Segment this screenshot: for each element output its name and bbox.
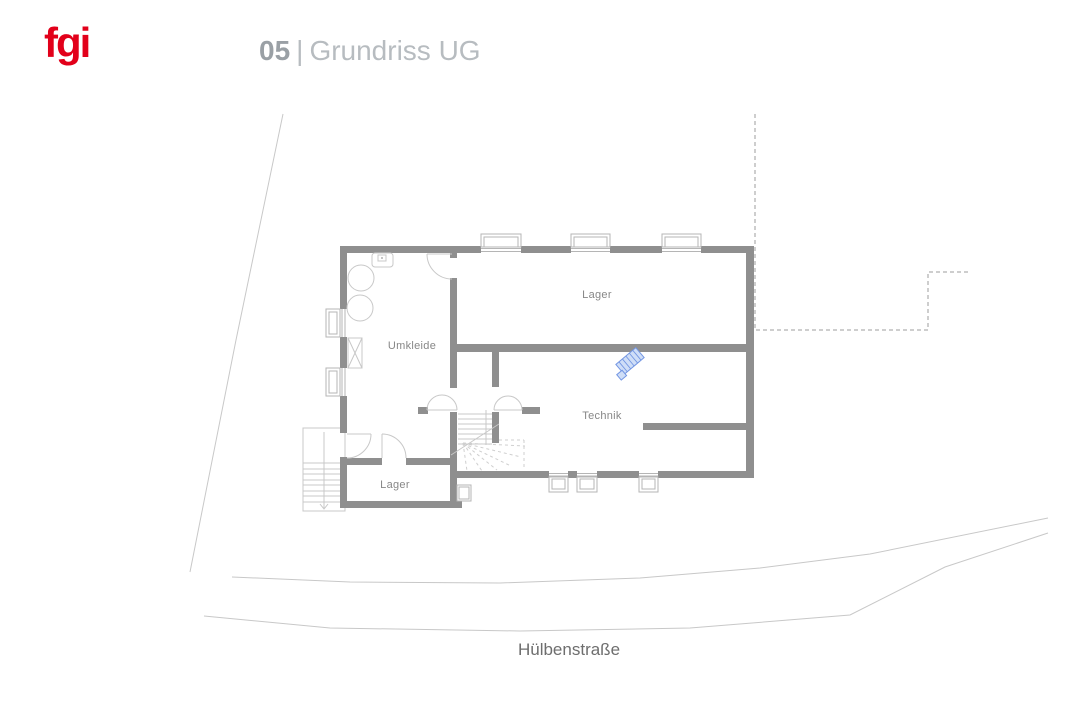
property-line-diagonal bbox=[190, 114, 283, 572]
room-label-technik: Technik bbox=[552, 410, 652, 422]
interior-stair bbox=[451, 410, 525, 471]
door-umkleide-lager bbox=[427, 254, 452, 279]
stair-winder-dashed bbox=[463, 440, 525, 471]
round-fixture bbox=[347, 295, 373, 321]
slide-page: fgi 05|Grundriss UG bbox=[0, 0, 1089, 712]
stair-direction-arrow bbox=[320, 500, 328, 509]
door-exterior-left bbox=[347, 434, 371, 458]
building-walls bbox=[340, 246, 754, 508]
shaft-icon bbox=[348, 338, 362, 368]
room-label-umkleide: Umkleide bbox=[362, 340, 462, 352]
window-lightwells-top bbox=[481, 234, 701, 252]
window-box-lager-small bbox=[457, 485, 471, 501]
room-label-lager-small: Lager bbox=[345, 479, 445, 491]
street-edge-lines bbox=[204, 518, 1048, 631]
property-boundary-dashed bbox=[755, 114, 970, 330]
round-fixture bbox=[348, 265, 374, 291]
door-lager-small bbox=[382, 434, 406, 458]
sink-icon bbox=[372, 253, 393, 267]
exterior-stair bbox=[303, 428, 345, 511]
door-hall-umkleide bbox=[427, 395, 457, 410]
door-hall-technik bbox=[494, 396, 522, 410]
street-name-label: Hülbenstraße bbox=[469, 640, 669, 660]
room-label-lager-main: Lager bbox=[547, 289, 647, 301]
hvac-unit-symbol bbox=[611, 348, 645, 380]
floor-plan-drawing bbox=[0, 0, 1089, 712]
